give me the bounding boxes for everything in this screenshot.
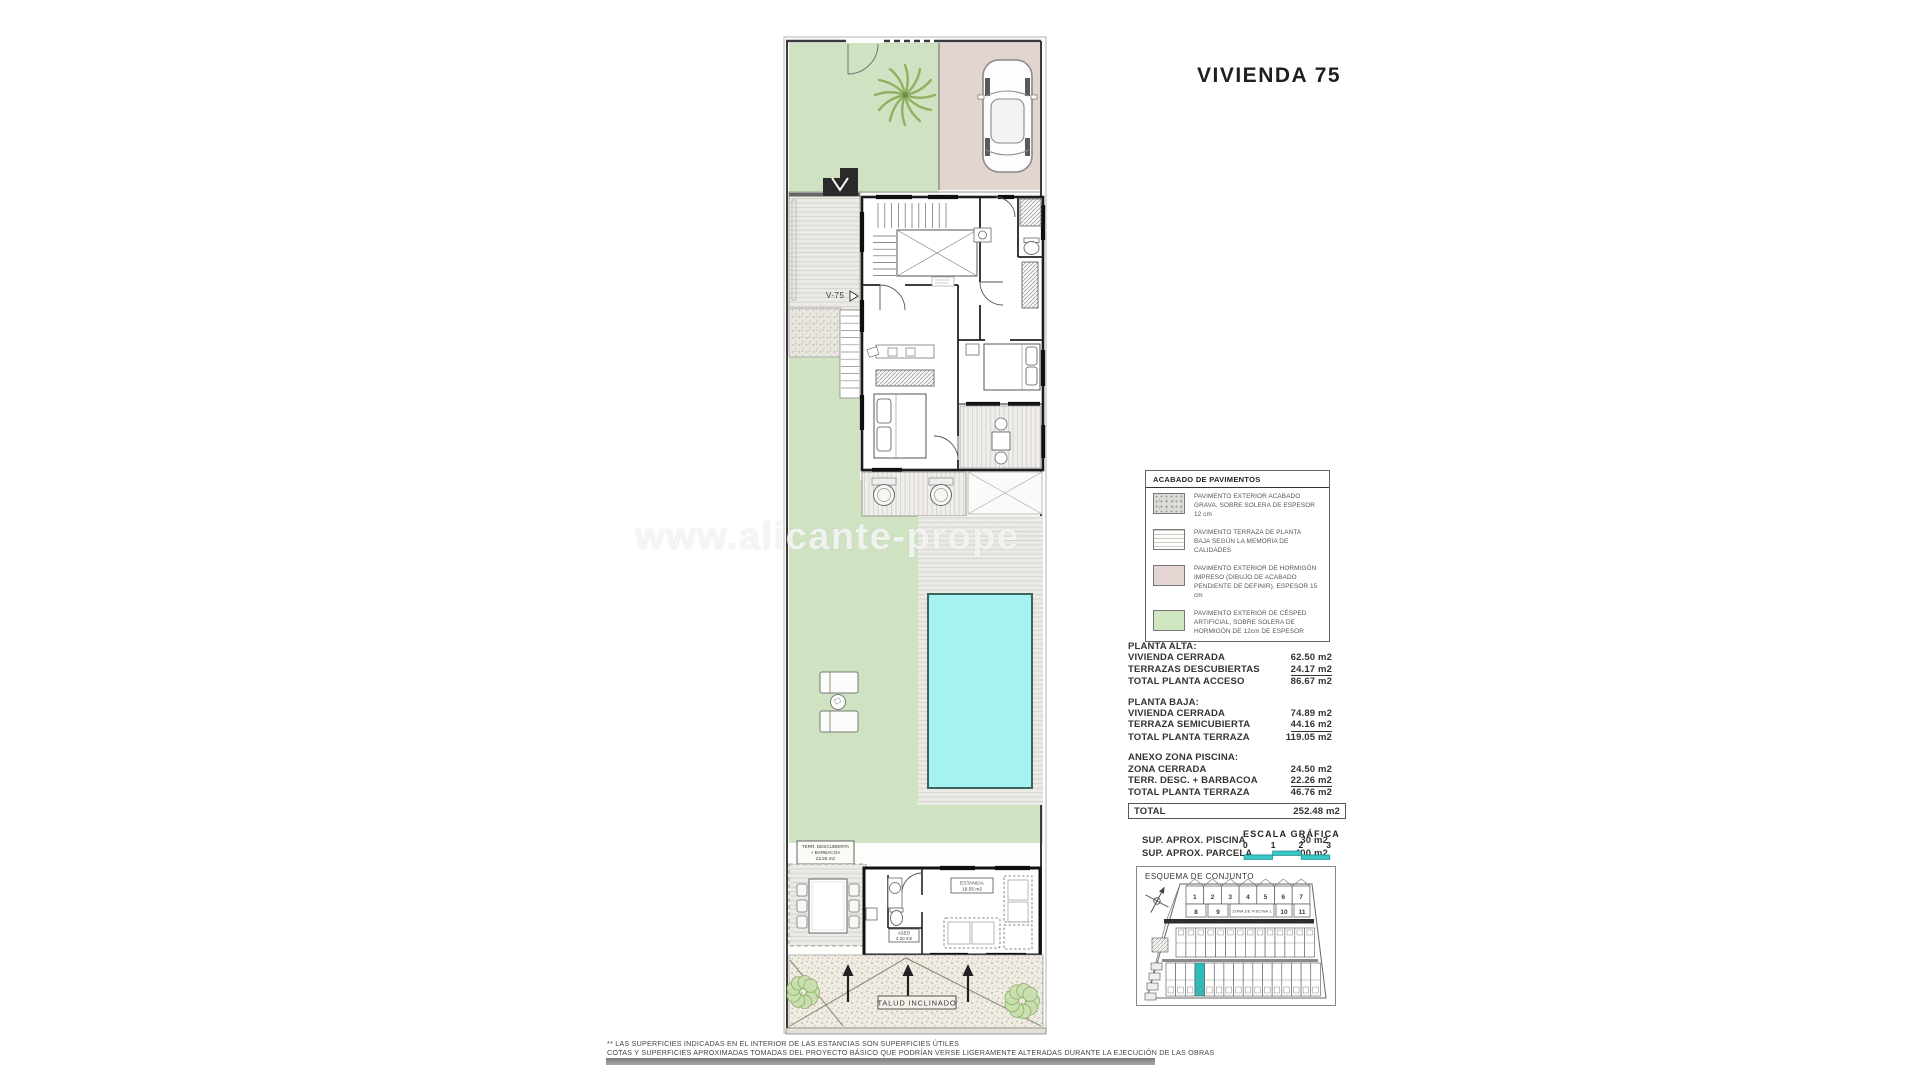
v75-label: V-75 <box>826 291 858 301</box>
svg-text:22.26 m2: 22.26 m2 <box>816 856 836 861</box>
svg-text:9: 9 <box>1216 909 1220 916</box>
pergola-area <box>968 472 1042 514</box>
svg-text:19.55 m2: 19.55 m2 <box>962 887 982 893</box>
area-schedule: PLANTA ALTA: VIVIENDA CERRADA62.50 m2 TE… <box>1128 641 1332 860</box>
scale-ticks: 01 23 <box>1243 840 1331 850</box>
scale-bar <box>1243 850 1331 861</box>
pool <box>928 594 1032 788</box>
footer-bar <box>606 1058 1155 1065</box>
svg-text:11: 11 <box>1299 909 1306 916</box>
planta-baja-section: PLANTA BAJA: VIVIENDA CERRADA74.89 m2 TE… <box>1128 697 1332 744</box>
gravel-swatch <box>1153 493 1185 514</box>
svg-text:V-75: V-75 <box>826 291 845 300</box>
gravel-patch <box>789 308 841 357</box>
footer-note-2: COTAS Y SUPERFICIES APROXIMADAS TOMADAS … <box>607 1049 1214 1058</box>
svg-text:4.20 m2: 4.20 m2 <box>896 936 913 941</box>
unit-row-bottom <box>1166 963 1320 996</box>
semicovered-deck <box>862 472 966 516</box>
total-row: TOTAL252.48 m2 <box>1128 803 1346 819</box>
wardrobe-bedroom <box>876 370 934 386</box>
planta-alta-section: PLANTA ALTA: VIVIENDA CERRADA62.50 m2 TE… <box>1128 641 1332 688</box>
zona-piscina-label: ZONA DE PISCINA 1 <box>1232 910 1271 914</box>
grass-swatch <box>1153 610 1185 631</box>
svg-text:TALUD INCLINADO: TALUD INCLINADO <box>878 999 957 1008</box>
talud-slope-area: TALUD INCLINADO <box>786 955 1046 1034</box>
entry-terrace <box>789 193 860 310</box>
svg-text:10: 10 <box>1280 909 1288 916</box>
svg-text:7: 7 <box>1299 894 1303 901</box>
terrace-bbq-label: TERR. DESCUBIERTA + BARBACOA 22.26 m2 <box>797 841 854 864</box>
unit-row-middle <box>1176 928 1315 957</box>
desk <box>867 345 934 358</box>
floor-plan-sheet: V-75 <box>0 0 1920 1080</box>
dining-area <box>789 864 866 946</box>
upper-terrace <box>960 406 1041 468</box>
watermark: www.alicante-prope <box>635 516 1020 559</box>
svg-text:3: 3 <box>1228 894 1232 901</box>
svg-text:6: 6 <box>1281 894 1285 901</box>
legend-row: PAVIMENTO EXTERIOR DE CÉSPED ARTIFICIAL,… <box>1146 605 1329 641</box>
graphic-scale: ESCALA GRÁFICA 01 23 <box>1243 829 1340 861</box>
svg-text:ESTANCIA: ESTANCIA <box>960 881 984 887</box>
svg-text:TERR. DESCUBIERTA: TERR. DESCUBIERTA <box>802 844 850 849</box>
compass-icon <box>1139 882 1175 919</box>
svg-text:5: 5 <box>1264 894 1268 901</box>
anexo-piscina-section: ANEXO ZONA PISCINA: ZONA CERRADA24.50 m2… <box>1128 752 1332 799</box>
legend-row: PAVIMENTO EXTERIOR DE HORMIGÓN IMPRESO (… <box>1146 560 1329 605</box>
legend-title: ACABADO DE PAVIMENTOS <box>1146 471 1329 488</box>
wardrobe-right <box>1022 262 1038 308</box>
svg-text:+ BARBACOA: + BARBACOA <box>811 850 841 855</box>
concrete-swatch <box>1153 565 1185 586</box>
bed-main <box>874 394 926 458</box>
page-title: VIVIENDA 75 <box>1197 64 1341 88</box>
car-icon <box>978 60 1037 172</box>
legend-row: PAVIMENTO EXTERIOR ACABADO GRAVA, SOBRE … <box>1146 488 1329 524</box>
legend-row: PAVIMENTO TERRAZA DE PLANTA BAJA SEGÚN L… <box>1146 524 1329 560</box>
estancia-label: ESTANCIA 19.55 m2 <box>951 878 993 893</box>
aseo-label: ASEO 4.20 m2 <box>889 929 919 942</box>
pavement-legend: ACABADO DE PAVIMENTOS PAVIMENTO EXTERIOR… <box>1145 470 1330 642</box>
site-overview-drawing: 1 2 3 4 5 6 7 8 9 10 11 ZONA DE PISCINA … <box>1136 866 1334 1004</box>
terrace-swatch <box>1153 529 1185 550</box>
svg-text:2: 2 <box>1211 894 1215 901</box>
upper-floor-plan <box>862 197 1043 470</box>
svg-text:1: 1 <box>1193 894 1197 901</box>
scale-title: ESCALA GRÁFICA <box>1243 829 1340 839</box>
annex-building: ASEO 4.20 m2 ESTANCIA 19.55 m2 <box>864 868 1040 955</box>
svg-text:8: 8 <box>1194 909 1198 916</box>
svg-text:ASEO: ASEO <box>898 931 911 936</box>
svg-text:4: 4 <box>1246 894 1250 901</box>
